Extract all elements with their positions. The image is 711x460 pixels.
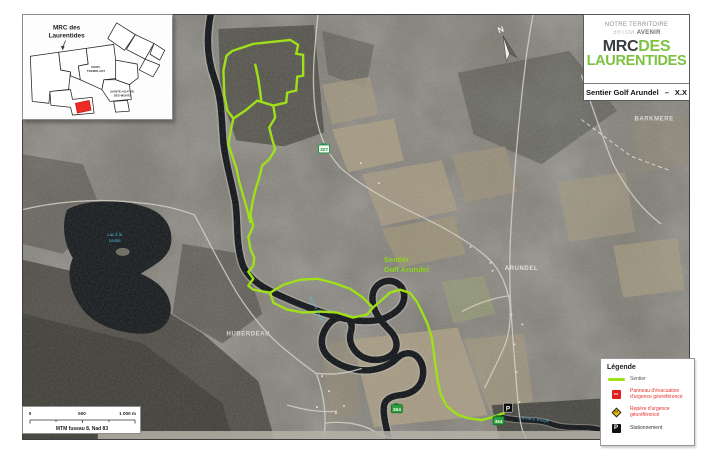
mrc-laurentides-logo: MRCDES LAURENTIDES [584,40,689,68]
label-barkmere: BARKMERE [634,117,673,123]
map-title: Sentier Golf Arundel [586,88,659,97]
legend-label-panneau-line2: d'urgence géoréférencé [630,394,683,401]
map-title-bar: Sentier Golf Arundel – X.X [584,83,689,100]
evacuation-panel-icon: 911 [612,390,621,399]
legend-item-repere: 911 Repère d'urgence géoréférencé [607,406,688,419]
brand-tagline: NOTRE TERRITOIRE NOTRE AVENIR [584,15,689,37]
inset-label-des-monts: DES-MONTS [114,93,132,97]
label-huberdeau: HUBERDEAU [227,331,271,337]
tagline-bold-word: AVENIR [637,30,661,36]
inset-callout: MRC des Laurentides [49,25,86,51]
label-lake-line1: Lac à la [107,232,122,237]
scalebar-svg: 0 500 1 000 m MTM fuseau 8, Nad 83 [23,407,140,433]
tagline-line1: NOTRE TERRITOIRE [584,21,689,29]
scale-bar-line [30,420,135,424]
emergency-marker-icon: 911 [611,407,621,417]
route-327-number: 327 [320,147,328,153]
legend-title: Légende [607,364,688,371]
inset-svg: MRC des Laurentides MONT- TREMBLANT SAIN… [23,15,172,119]
inset-callout-arrowhead [61,46,65,50]
map-title-code: X.X [675,88,687,97]
legend-label-sentier: Sentier [630,376,646,382]
tagline-line2: NOTRE AVENIR [584,29,689,37]
emergency-marker-number: 911 [614,411,618,414]
map-sheet: BARKMERE ARUNDEL HUBERDEAU Sentier Golf … [0,0,711,460]
inset-callout-line2: Laurentides [49,33,86,40]
header-panel: NOTRE TERRITOIRE NOTRE AVENIR MRCDES LAU… [583,14,690,101]
label-trail-line1: Sentier [384,255,409,264]
label-lake-line2: Loutre [109,238,122,243]
scale-tick-500: 500 [78,411,86,416]
legend-label-stationnement: Stationnement [630,425,662,431]
scalebar-panel: 0 500 1 000 m MTM fuseau 8, Nad 83 [22,406,141,434]
legend-item-panneau: 911 Panneau d'évacuation d'urgence géoré… [607,388,688,401]
tagline-mirrored-word: NOTRE [612,29,635,37]
route-shield-364-west: 364 [391,403,402,413]
route-364-number: 364 [393,407,401,413]
route-shield-364-east: 364 [493,415,504,425]
legend-label-repere-line2: géoréférencé [630,412,670,419]
logo-laurentides: LAURENTIDES [584,55,689,68]
legend-item-sentier: Sentier [607,376,688,383]
label-arundel: ARUNDEL [505,266,538,272]
inset-label-tremblant: TREMBLANT [87,69,105,73]
inset-callout-line1: MRC des [53,25,81,32]
legend-item-stationnement: P Stationnement [607,424,688,433]
parking-letter: P [506,405,511,412]
parking-marker: P [504,403,513,412]
route-364-number: 364 [495,419,503,425]
inset-locator-map: MRC des Laurentides MONT- TREMBLANT SAIN… [22,14,173,120]
label-trail-line2: Golf Arundel [384,265,429,274]
route-shield-327: 327 [319,143,330,153]
trail-line-icon [608,378,625,381]
scale-tick-0: 0 [29,411,32,416]
scale-datum: MTM fuseau 8, Nad 83 [56,426,108,432]
legend-panel: Légende Sentier 911 Panneau d'évacuation… [600,358,695,446]
parking-icon: P [612,424,621,433]
scale-tick-1000: 1 000 m [119,411,136,416]
map-title-separator: – [665,88,669,97]
